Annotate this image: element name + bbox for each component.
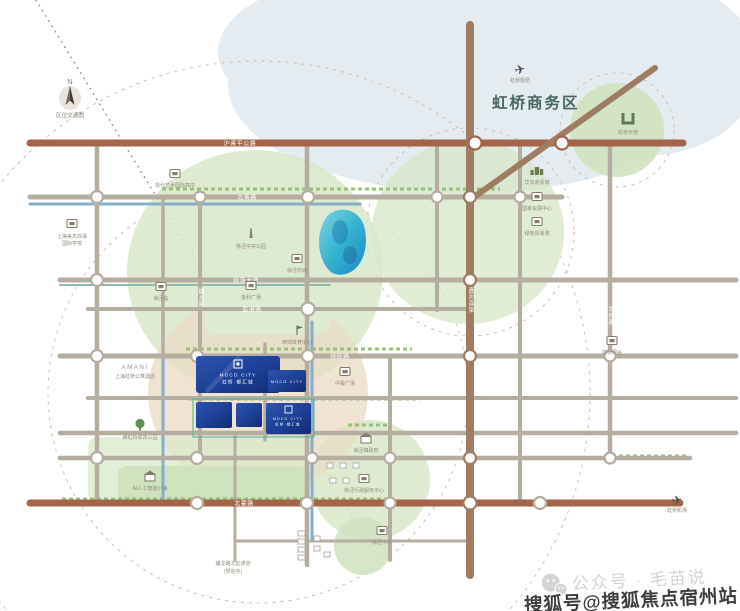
building-icon	[246, 282, 256, 290]
project-block-5-line2: 虹桥·都汇城	[275, 422, 300, 427]
landmark-label: 徐泾镇政府	[353, 447, 378, 454]
road-label: 华翔路	[607, 306, 614, 327]
landmark-label: 西郊体育中心	[282, 339, 312, 346]
road-label: 嘉闵高架	[467, 286, 474, 314]
landmark-label: 现代艺术国际高中	[155, 182, 195, 189]
project-brand-text: MOCO CITY	[220, 373, 257, 378]
building-icon	[607, 337, 617, 345]
road-label: 盈港路	[242, 305, 262, 313]
landmark-label: 徐泾小学	[372, 539, 392, 546]
landmark-label: 虹桥绿谷	[602, 349, 622, 356]
green-zone-school	[334, 517, 392, 575]
airport-bottom-label: 虹桥机场	[667, 507, 687, 514]
ai-town-zone	[118, 466, 310, 502]
airport-top-label: 虹桥枢纽	[510, 77, 530, 84]
landmark-label: 徐泾站	[153, 295, 168, 302]
project-cn-name: 虹桥·都汇城	[222, 379, 254, 386]
landmark-label: AI人工智能小镇	[133, 485, 168, 492]
landmark-label: 上海虹桥公寓酒店	[115, 373, 155, 380]
landmark-label: 绿地贸易港	[524, 230, 549, 237]
project-block-2-label: MOCO CITY	[271, 380, 303, 384]
district-title: 虹桥商务区	[492, 93, 580, 112]
compass-n-letter: N	[67, 77, 72, 86]
location-traffic-map: 沪青平公路 北青路 崧泽大道 盈港路 徐民路 北翟路 嘉闵高架 诸光路 蟠龙路 …	[0, 0, 740, 611]
building-icon	[359, 475, 369, 483]
road-label: 蟠龙路	[197, 288, 204, 309]
building-icon	[340, 368, 350, 376]
station-icon	[156, 283, 166, 291]
landmark-label: 徐泾中央公园	[236, 243, 266, 250]
project-block-4	[236, 403, 262, 427]
map-canvas: 沪青平公路 北青路 崧泽大道 盈港路 徐民路 北翟路 嘉闵高架 诸光路 蟠龙路 …	[0, 0, 740, 611]
project-block-5-line1: MOCO CITY	[273, 417, 303, 421]
road-label: 徐民路	[330, 352, 350, 360]
school-icon	[67, 220, 77, 228]
landmark-label: 西虹桥体育公园	[122, 434, 157, 441]
school-icon	[170, 170, 180, 178]
landmark-label: 徐泾商城	[287, 267, 307, 274]
compass-caption: 区位交通图	[56, 111, 84, 119]
hotel-brand-text: AMANI	[121, 364, 148, 371]
building-icon	[532, 193, 542, 201]
project-block-3	[196, 402, 232, 428]
school-icon	[377, 527, 387, 535]
road-label: 北青路	[237, 193, 257, 201]
landmark-label: 华东商贸城	[524, 179, 549, 186]
landmark-label: 国家会展中心	[522, 205, 552, 212]
planning-note-line1: 蟠龙路北延通道	[215, 560, 250, 567]
road-label: 北翟路	[234, 500, 254, 508]
landmark-label: 国际学校	[62, 240, 82, 247]
building-icon	[292, 255, 302, 263]
building-icon	[532, 218, 542, 226]
landmark-label: 上海美高双语	[57, 233, 87, 240]
landmark-label: 虹桥天地	[618, 129, 638, 136]
road-label: 沪青平公路	[224, 140, 257, 148]
landmark-label: 金科广场	[241, 294, 261, 301]
landmark-label: 中骏广场	[335, 380, 355, 387]
landmark-label: 徐泾行政服务中心	[344, 487, 384, 494]
planning-note-line2: (规划中)	[224, 568, 243, 575]
